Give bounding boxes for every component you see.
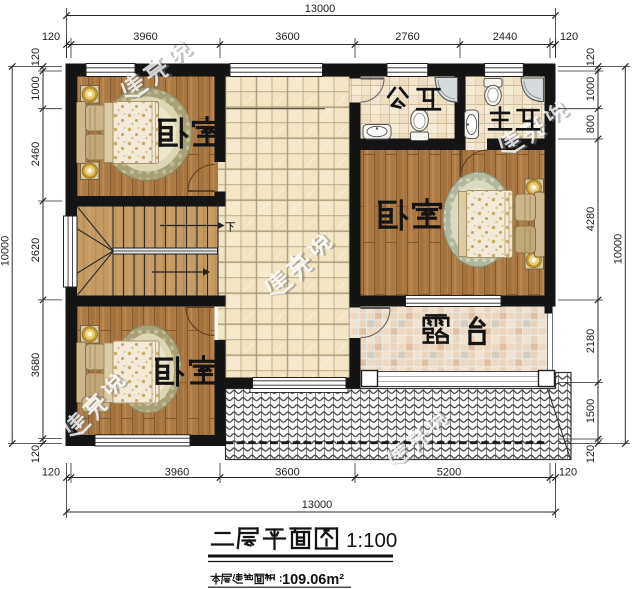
svg-text:120: 120: [585, 48, 597, 66]
svg-text:120: 120: [585, 445, 597, 463]
svg-text:3680: 3680: [30, 353, 42, 377]
svg-text:2760: 2760: [395, 31, 419, 43]
svg-text:800: 800: [585, 115, 597, 133]
svg-text:120: 120: [559, 467, 577, 479]
svg-text:1000: 1000: [30, 76, 42, 100]
svg-text:120: 120: [42, 467, 60, 479]
svg-text:120: 120: [30, 445, 42, 463]
svg-text:10000: 10000: [613, 234, 625, 265]
svg-text:5200: 5200: [437, 467, 461, 479]
svg-text:2620: 2620: [30, 238, 42, 262]
svg-text:1:100: 1:100: [346, 529, 397, 552]
svg-text:120: 120: [30, 48, 42, 66]
svg-text:3600: 3600: [275, 31, 299, 43]
svg-text:1500: 1500: [585, 399, 597, 423]
svg-text:4280: 4280: [585, 207, 597, 231]
svg-text:120: 120: [560, 31, 578, 43]
svg-text:1000: 1000: [585, 77, 597, 101]
svg-text:13000: 13000: [305, 3, 336, 15]
svg-text:3600: 3600: [275, 467, 299, 479]
svg-text:120: 120: [42, 31, 60, 43]
svg-text:109.06m²: 109.06m²: [282, 572, 344, 588]
svg-text:3960: 3960: [165, 467, 189, 479]
svg-text:2440: 2440: [493, 31, 517, 43]
svg-text:10000: 10000: [0, 236, 12, 267]
svg-text:3960: 3960: [133, 31, 157, 43]
svg-text:13000: 13000: [302, 499, 333, 511]
svg-text:2460: 2460: [30, 142, 42, 166]
svg-text:2180: 2180: [585, 329, 597, 353]
